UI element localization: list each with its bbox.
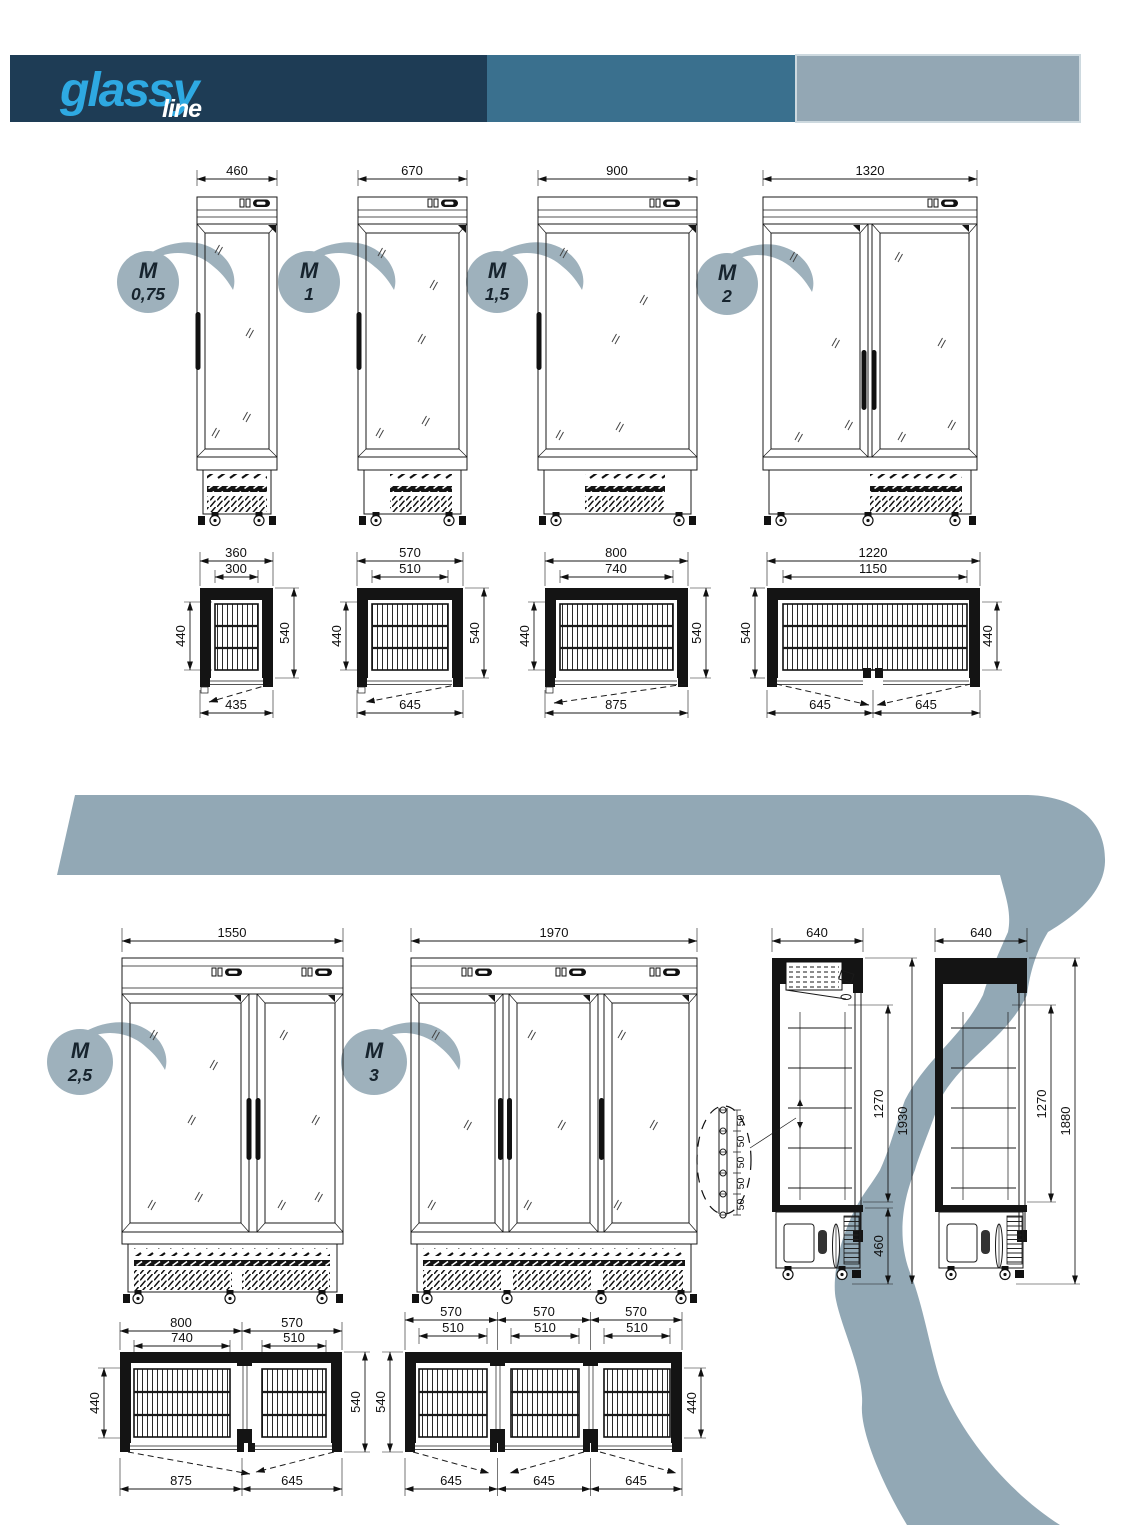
caster-wheel [133,1290,143,1304]
vent-grille [585,496,665,512]
control-panel-icon [462,968,492,976]
header-segment-gray [796,55,1080,122]
dim-inner: 510 [626,1320,648,1335]
vent-grille [242,1270,330,1290]
dim-inner: 1150 [859,561,887,576]
door-handle [599,1098,604,1160]
dim-swing: 645 [281,1473,303,1488]
dim-outer: 570 [399,545,421,560]
caster-wheel [783,1266,793,1280]
dim-front-width-m3: 1970 [411,925,697,952]
caster-wheel [502,1290,512,1304]
control-panel-icon [556,968,586,976]
front-view-m1: 670 [357,163,468,526]
shelf-grid [560,604,673,670]
caster-wheel [674,512,684,526]
dim-left: 440 [329,625,344,647]
badge-model-letter: M [71,1038,90,1063]
dim-swing: 645 [915,697,937,712]
dim-left: 540 [738,622,753,644]
badge-model-letter: M [718,260,737,285]
shelf-grid [783,604,967,670]
dim-label: 670 [401,163,423,178]
badge-model-size: 2,5 [67,1065,93,1085]
dim-right: 440 [980,625,995,647]
badge-model-size: 1,5 [485,284,510,304]
spec-sheet-page: glassy line M 0,75 M 1 M 1,5 M 2 460 670 [0,0,1126,1525]
evaporator-unit [786,962,842,990]
shelf-pitch-detail: 50 50 50 50 50 [697,1106,796,1218]
plan-view-m15: 800 740 440 540 875 [517,545,711,718]
vent-grille [603,1270,683,1290]
door-handle [872,350,877,410]
dim-inner: 740 [171,1330,193,1345]
dim-inner: 300 [225,561,247,576]
dim-right: 440 [684,1392,699,1414]
dim-outer: 360 [225,545,247,560]
side-view-2: 640 1270 1880 [935,925,1080,1284]
model-badge-m1: M 1 [278,242,395,313]
control-panel-icon [212,968,242,976]
dim-label: 640 [970,925,992,940]
dim-label: 640 [806,925,828,940]
dim-label: 1270 [1034,1090,1049,1119]
control-panel-icon [240,199,270,207]
badge-model-size: 1 [304,284,314,304]
compressor [784,1224,814,1262]
door-swing-arc [413,1452,489,1473]
dim-outer: 570 [281,1315,303,1330]
vent-grille [870,496,962,512]
pitch-label: 50 [735,1115,747,1127]
control-panel-icon [650,199,680,207]
dim-label: 1970 [540,925,569,940]
dim-outer: 800 [170,1315,192,1330]
dim-side-width-1: 640 [772,925,863,952]
shelf-grid [262,1369,326,1437]
base-grille [1007,1216,1022,1264]
logo-subtext: line [162,95,202,123]
door-handle [537,312,542,370]
control-panel-icon [928,199,958,207]
dim-swing: 435 [225,697,247,712]
shelf-grid [372,604,448,670]
front-view-m2: 1320 [763,163,977,526]
door-swing-arc [600,1452,676,1473]
dim-inner: 740 [605,561,627,576]
dim-swing: 875 [605,697,627,712]
dim-front-width-m25: 1550 [122,925,343,952]
dim-label: 460 [226,163,248,178]
dim-front-width-m1: 670 [358,163,467,186]
shelf-grid [511,1369,579,1437]
badge-model-size: 3 [369,1065,379,1085]
dim-right: 540 [467,622,482,644]
vent-grille [390,496,452,512]
badge-model-letter: M [300,258,319,283]
compressor [947,1224,977,1262]
badge-model-letter: M [365,1038,384,1063]
pitch-label: 50 [735,1178,747,1190]
dim-right: 540 [277,622,292,644]
door-swing-arc [256,1452,334,1472]
dim-swing: 645 [625,1473,647,1488]
plan-view-m3: 570 570 570 510 510 510 540 440 645 645 … [373,1304,706,1496]
badge-model-size: 0,75 [131,284,165,304]
dim-left: 440 [517,625,532,647]
caster-wheel [676,1290,686,1304]
dim-label: 1550 [218,925,247,940]
door-swing-arc [128,1452,250,1474]
dryer-cylinder [981,1230,990,1254]
dim-outer: 570 [533,1304,555,1319]
dim-right: 540 [689,622,704,644]
dim-swing: 875 [170,1473,192,1488]
door-handle [256,1098,261,1160]
dim-label: 1320 [856,163,885,178]
model-badge-m3: M 3 [341,1022,460,1095]
vent-grille [423,1270,501,1290]
caster-wheel [837,1266,847,1280]
dim-swing: 645 [533,1473,555,1488]
caster-wheel [551,512,561,526]
door-handle [498,1098,503,1160]
door-corner-shadow [268,225,276,233]
front-view-m25: 1550 [122,925,343,1304]
pitch-label: 50 [735,1157,747,1169]
dim-left: 540 [373,1391,388,1413]
model-badge-m075: M 0,75 [117,242,234,313]
door-handle [196,312,201,370]
plan-view-m075: 360 300 440 540 435 [173,545,299,718]
dim-swing: 645 [399,697,421,712]
door-handle [247,1098,252,1160]
caster-wheel [371,512,381,526]
dim-label: 900 [606,163,628,178]
dim-left: 440 [173,625,188,647]
dim-label: 1270 [871,1090,886,1119]
dim-right: 540 [348,1391,363,1413]
shelf-grid [419,1369,487,1437]
dim-label: 460 [871,1235,886,1257]
vent-grille [134,1270,232,1290]
shelf-adjust-arrow-up [797,1099,803,1106]
caster-wheel [776,512,786,526]
header-bar: glassy line [10,55,1080,123]
caster-wheel [863,512,873,526]
dim-front-width-m075: 460 [197,163,277,186]
door-handle [507,1098,512,1160]
dim-inner: 510 [399,561,421,576]
control-panel-icon [428,199,458,207]
control-panel-icon [650,968,680,976]
dim-outer: 570 [440,1304,462,1319]
plan-view-m25: 800 570 740 510 440 540 875 645 [87,1315,370,1496]
shelf-grid [604,1369,670,1437]
caster-wheel [422,1290,432,1304]
dim-outer: 570 [625,1304,647,1319]
badge-model-letter: M [139,258,158,283]
dim-swing: 645 [809,697,831,712]
vent-grille [513,1270,591,1290]
header-segment-mid [487,55,796,122]
caster-wheel [225,1290,235,1304]
vent-grille [207,496,267,512]
door-handle [862,350,867,410]
dim-outer: 1220 [859,545,888,560]
caster-wheel [946,1266,956,1280]
shelf-pins [719,1107,727,1218]
badge-model-letter: M [488,258,507,283]
caster-wheel [1000,1266,1010,1280]
dim-left: 440 [87,1392,102,1414]
front-view-m15: 900 [537,163,698,526]
dim-front-width-m15: 900 [538,163,697,186]
door-swing-arc [510,1452,584,1473]
caster-wheel [596,1290,606,1304]
badge-model-size: 2 [721,286,732,306]
caster-wheel [210,512,220,526]
dim-swing: 645 [440,1473,462,1488]
caster-wheel [950,512,960,526]
front-view-m075: 460 [196,163,278,526]
plan-view-m2: 1220 1150 540 440 645 645 [738,545,1002,718]
front-view-m3: 1970 [411,925,697,1304]
drawing-canvas: glassy line M 0,75 M 1 M 1,5 M 2 460 670 [0,0,1126,1525]
plan-view-m1: 570 510 440 540 645 [329,545,489,718]
dim-inner: 510 [534,1320,556,1335]
door-handle [357,312,362,370]
logo: glassy line [59,64,202,123]
shelf-grid [134,1369,230,1437]
pitch-label: 50 [735,1199,747,1211]
pitch-label: 50 [735,1136,747,1148]
model-badge-m25: M 2,5 [47,1022,166,1095]
base-grille [844,1216,859,1264]
control-panel-icon [302,968,332,976]
shelf-adjust-arrow-down [797,1122,803,1129]
dim-front-width-m2: 1320 [763,163,977,186]
caster-wheel [254,512,264,526]
model-badge-m2: M 2 [696,244,813,315]
dim-label: 1880 [1058,1107,1073,1136]
dim-inner: 510 [283,1330,305,1345]
caster-wheel [444,512,454,526]
dim-outer: 800 [605,545,627,560]
caster-wheel [317,1290,327,1304]
dryer-cylinder [818,1230,827,1254]
dim-inner: 510 [442,1320,464,1335]
dim-label: 1930 [895,1107,910,1136]
shelf-grid [215,604,258,670]
